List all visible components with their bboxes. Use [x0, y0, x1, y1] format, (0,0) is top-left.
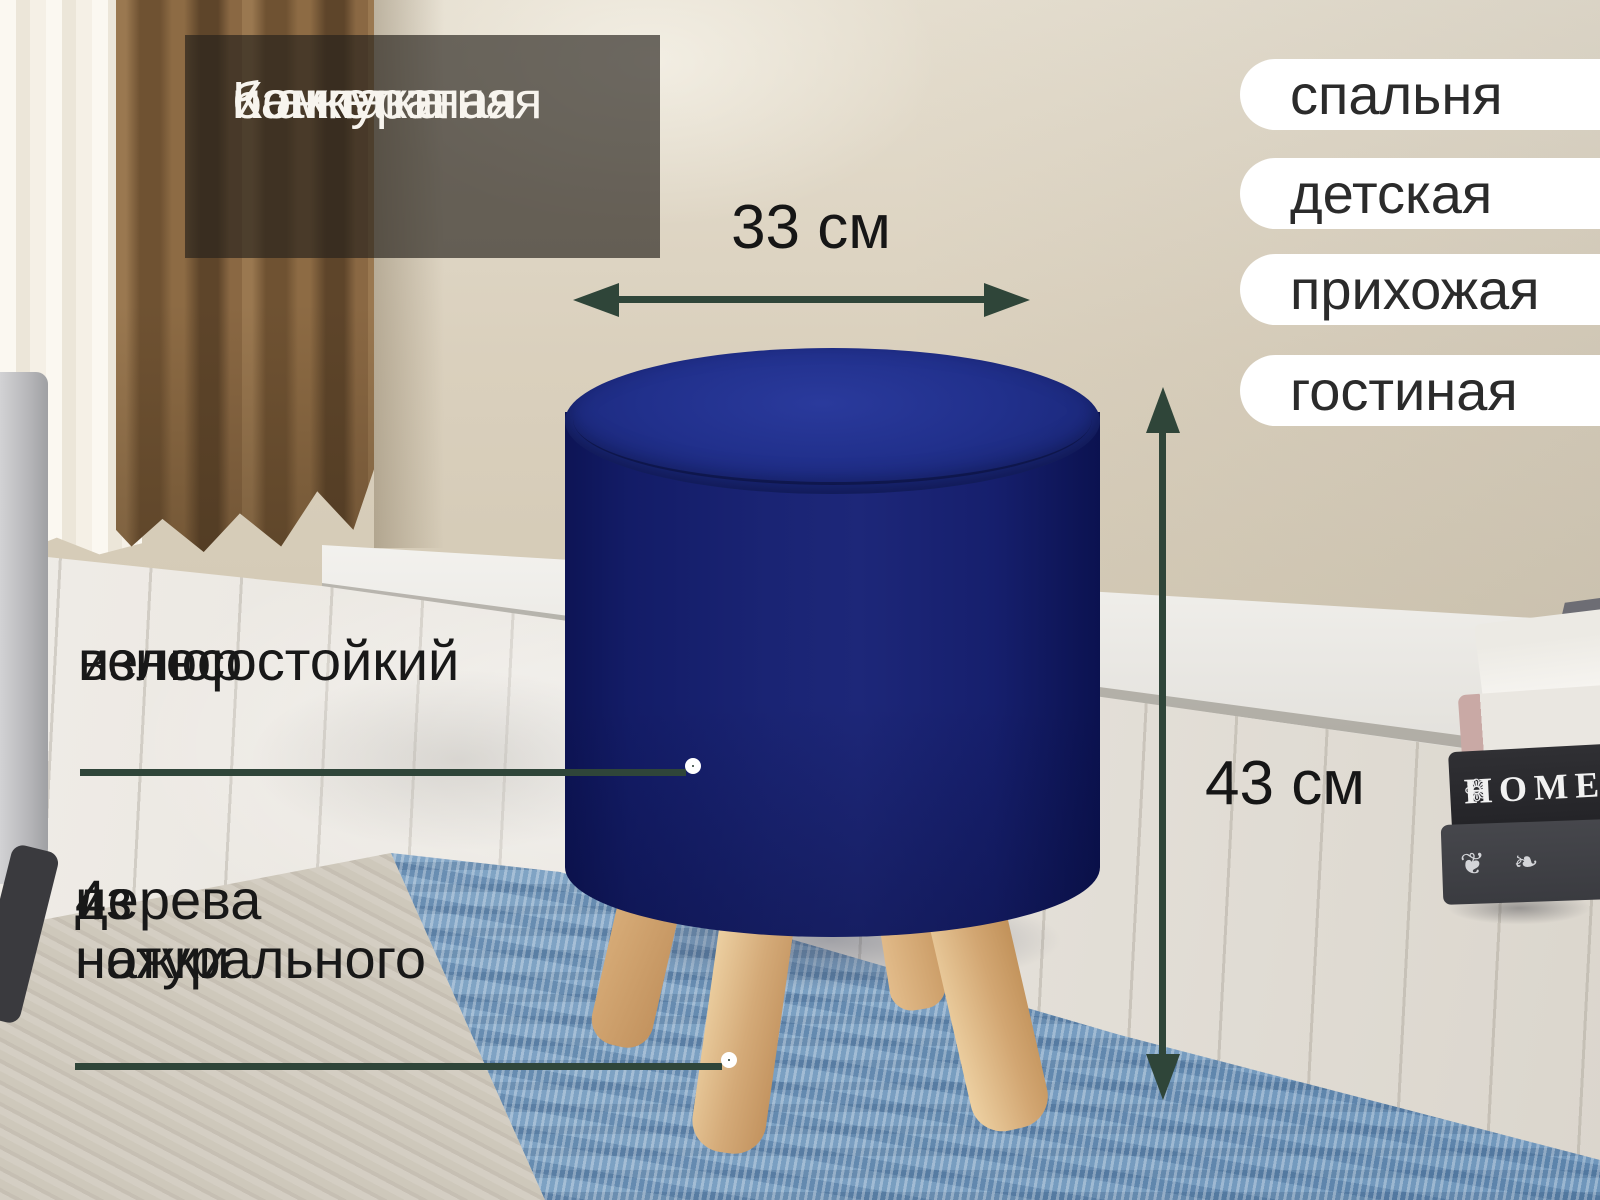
armchair-corner [0, 372, 48, 884]
room-tag-label: прихожая [1290, 257, 1540, 322]
room-tag-living-room: гостиная [1240, 355, 1600, 426]
arrow-right-icon [984, 283, 1030, 317]
arrow-down-icon [1146, 1054, 1180, 1100]
room-tag-label: спальня [1290, 62, 1503, 127]
width-dimension-label: 33 см [691, 192, 931, 263]
callout-velour-point-icon [685, 758, 701, 774]
callout-legs-point-icon [721, 1052, 737, 1068]
book-spine-title: HOME [1463, 763, 1600, 812]
book-home-spine: ❁ HOME [1448, 744, 1600, 832]
room-tag-label: гостиная [1290, 358, 1518, 423]
product-card-scene: ❁ HOME ❦ ❧ Компактная и аккуратная банке… [0, 0, 1600, 1200]
pouf-top-face [565, 348, 1100, 494]
callout-legs-line-3: дерева [75, 870, 261, 929]
width-dimension-arrow [573, 283, 1030, 317]
book-dark-bottom: ❦ ❧ [1441, 819, 1600, 905]
height-dimension-label: 43 см [1205, 748, 1405, 819]
room-tag-hallway: прихожая [1240, 254, 1600, 325]
height-dimension-arrow [1146, 387, 1180, 1100]
feature-overlay-box: Компактная и аккуратная банкетка [185, 35, 660, 258]
room-tag-bedroom: спальня [1240, 59, 1600, 130]
flourish-ornament-icon: ❦ ❧ [1459, 844, 1549, 882]
headline-line-3: банкетка [232, 70, 445, 132]
arrow-shaft [1159, 423, 1166, 1064]
arrow-shaft [609, 296, 994, 303]
callout-velour-line-2: велюр [78, 628, 242, 694]
room-tag-kids-room: детская [1240, 158, 1600, 229]
room-tag-label: детская [1290, 161, 1492, 226]
callout-legs-pointer-line [75, 1063, 722, 1070]
callout-velour-pointer-line [80, 769, 686, 776]
